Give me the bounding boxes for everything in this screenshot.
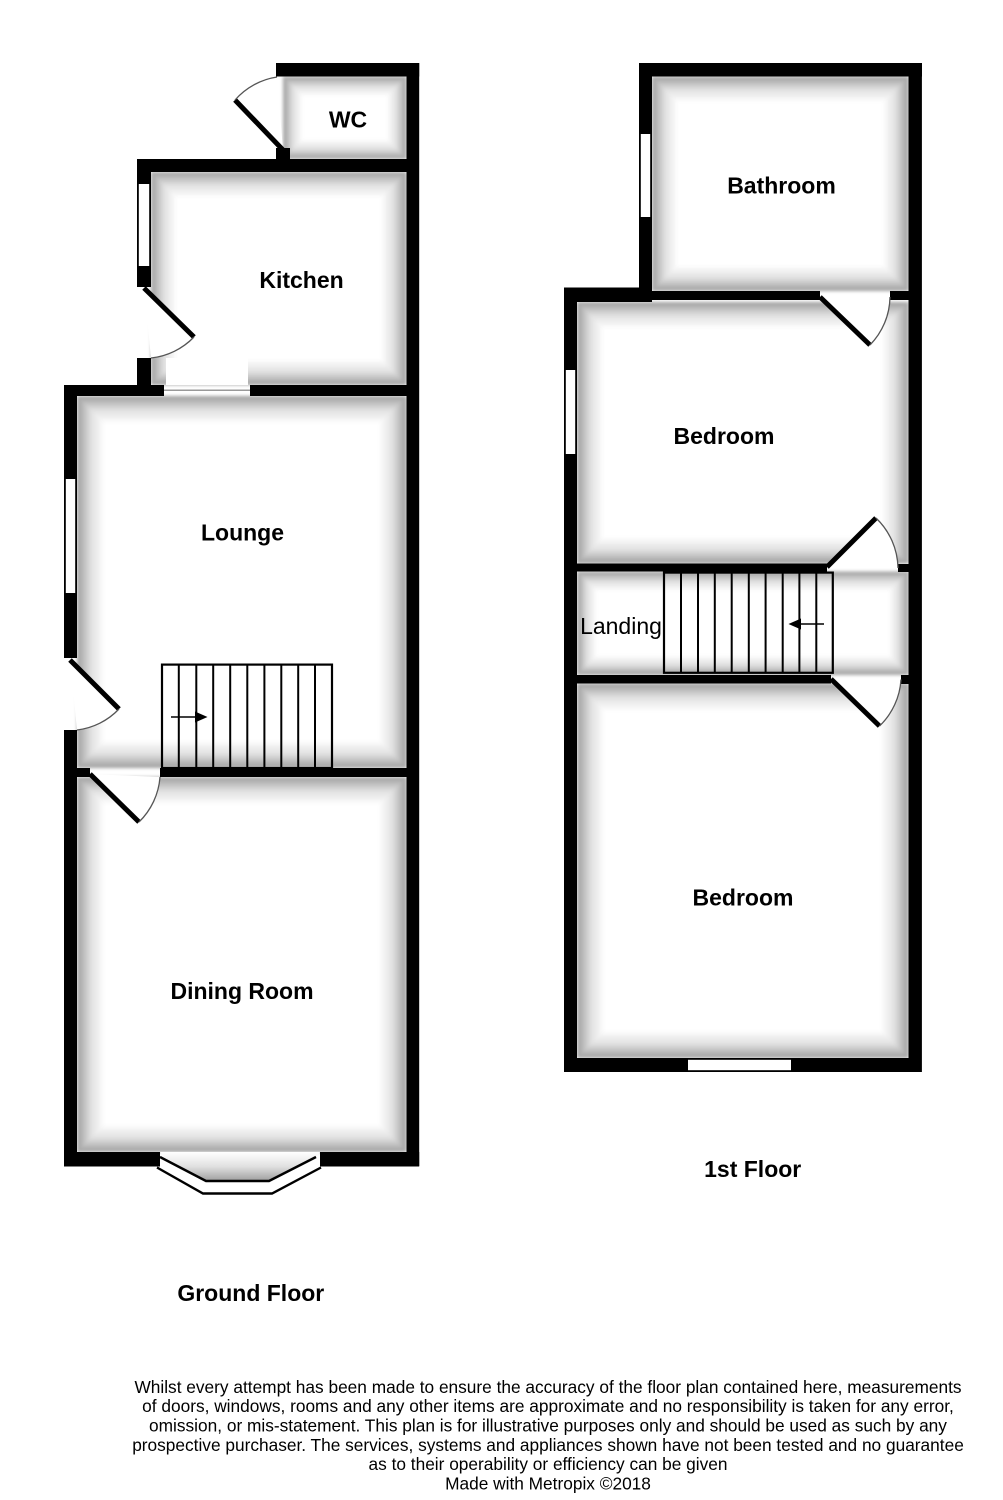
svg-text:Kitchen: Kitchen [259,267,343,293]
svg-text:Made with Metropix ©2018: Made with Metropix ©2018 [445,1474,651,1494]
svg-text:as to their operability or eff: as to their operability or efficiency ca… [369,1454,728,1474]
svg-text:Bedroom: Bedroom [674,423,775,449]
svg-text:Dining Room: Dining Room [170,978,313,1004]
svg-text:prospective purchaser. The ser: prospective purchaser. The services, sys… [132,1435,964,1455]
svg-text:Landing: Landing [580,613,662,639]
svg-text:1st Floor: 1st Floor [704,1156,801,1182]
svg-text:WC: WC [329,107,367,133]
svg-text:Bathroom: Bathroom [727,173,836,199]
svg-text:Ground Floor: Ground Floor [177,1280,324,1306]
svg-text:Whilst every attempt has been: Whilst every attempt has been made to en… [134,1377,961,1397]
svg-text:of doors, windows, rooms and a: of doors, windows, rooms and any other i… [142,1396,954,1416]
svg-text:omission, or mis-statement. Th: omission, or mis-statement. This plan is… [149,1416,947,1436]
svg-text:Lounge: Lounge [201,520,284,546]
svg-text:Bedroom: Bedroom [693,885,794,911]
